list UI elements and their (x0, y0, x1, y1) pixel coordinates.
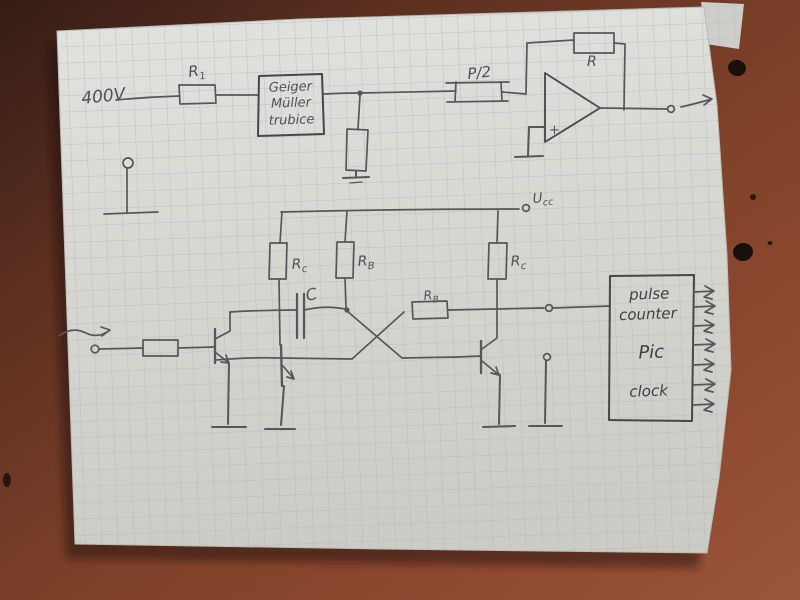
transistor-q2-base-bar (281, 345, 282, 386)
wire-opamp-output (600, 108, 667, 109)
wire-input (99, 348, 143, 349)
opamp-plus-label: + (549, 123, 560, 138)
svg-text:pulse: pulse (628, 284, 670, 303)
photo-of-schematic: 400V R1 Geiger Müller trubice P/2 R + Uc… (0, 0, 800, 600)
wire-q3-base (457, 356, 481, 357)
feedback-r-label: R (587, 54, 597, 70)
svg-text:Pic: Pic (638, 342, 665, 364)
wire-rc-left-down (279, 279, 280, 345)
wire-to-q1 (178, 347, 214, 348)
svg-text:counter: counter (619, 304, 678, 324)
rail-drop-right (497, 211, 498, 243)
p2-label: P/2 (467, 63, 492, 83)
schematic-photo-canvas: 400V R1 Geiger Müller trubice P/2 R + Uc… (0, 0, 800, 600)
svg-text:Geiger: Geiger (269, 79, 314, 96)
geiger-tube-label: Geiger Müller trubice (267, 79, 315, 129)
svg-text:trubice: trubice (268, 112, 314, 129)
grid-lines (57, 7, 731, 553)
svg-text:clock: clock (629, 381, 669, 400)
wire-rb-down (345, 278, 346, 308)
svg-text:Müller: Müller (271, 95, 313, 111)
squared-paper (57, 7, 731, 553)
